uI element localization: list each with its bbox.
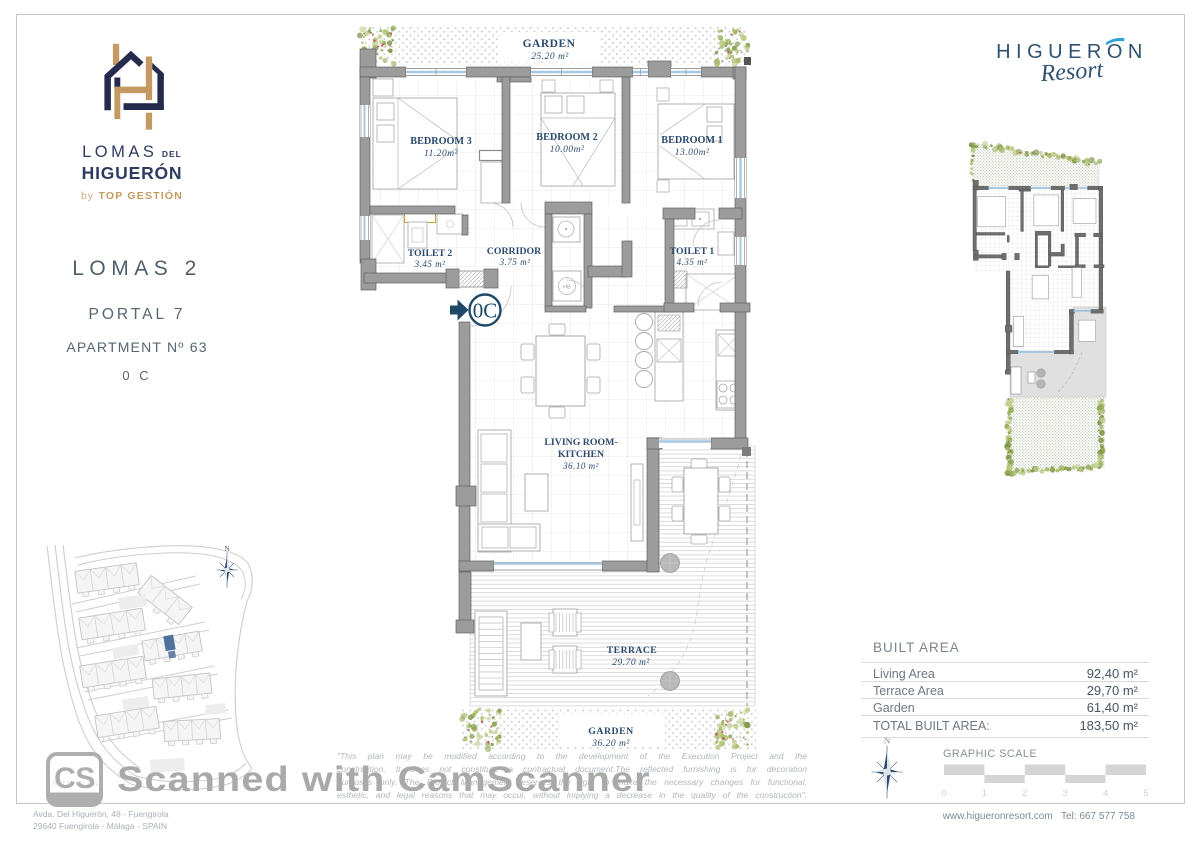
svg-text:13.00m²: 13.00m² [675, 148, 710, 158]
svg-text:BEDROOM 1: BEDROOM 1 [661, 135, 722, 146]
svg-text:4.35 m²: 4.35 m² [677, 257, 708, 267]
svg-text:LIVING ROOM-: LIVING ROOM- [544, 437, 617, 448]
svg-text:BEDROOM 2: BEDROOM 2 [536, 132, 597, 143]
svg-text:36.20 m²: 36.20 m² [591, 739, 629, 749]
svg-text:10.00m²: 10.00m² [550, 145, 585, 155]
svg-text:25.20 m²: 25.20 m² [531, 52, 568, 62]
svg-text:1: 1 [982, 788, 987, 799]
svg-text:36.10 m²: 36.10 m² [562, 461, 599, 471]
svg-text:HB: HB [563, 285, 571, 291]
svg-text:TOILET 2: TOILET 2 [408, 248, 453, 259]
svg-text:3.45 m²: 3.45 m² [414, 259, 446, 269]
svg-text:2: 2 [1022, 788, 1027, 799]
svg-text:0: 0 [941, 788, 946, 799]
svg-text:N: N [224, 545, 229, 553]
svg-text:GARDEN: GARDEN [523, 38, 576, 50]
svg-text:TOILET 1: TOILET 1 [670, 246, 715, 257]
svg-text:0C: 0C [473, 299, 498, 323]
svg-text:4: 4 [1103, 788, 1108, 799]
svg-text:CS: CS [54, 762, 95, 795]
svg-text:11.20m²: 11.20m² [424, 149, 458, 159]
svg-text:29.70 m²: 29.70 m² [612, 658, 649, 668]
svg-text:TERRACE: TERRACE [607, 645, 657, 656]
svg-text:CORRIDOR: CORRIDOR [487, 246, 542, 257]
svg-text:GARDEN: GARDEN [588, 726, 633, 737]
svg-text:KITCHEN: KITCHEN [558, 449, 604, 460]
svg-text:3: 3 [1063, 788, 1068, 799]
svg-text:5: 5 [1143, 788, 1148, 799]
svg-text:GRAPHIC SCALE: GRAPHIC SCALE [943, 748, 1037, 760]
svg-text:3.75 m²: 3.75 m² [499, 257, 531, 267]
svg-text:BEDROOM 3: BEDROOM 3 [410, 136, 471, 147]
